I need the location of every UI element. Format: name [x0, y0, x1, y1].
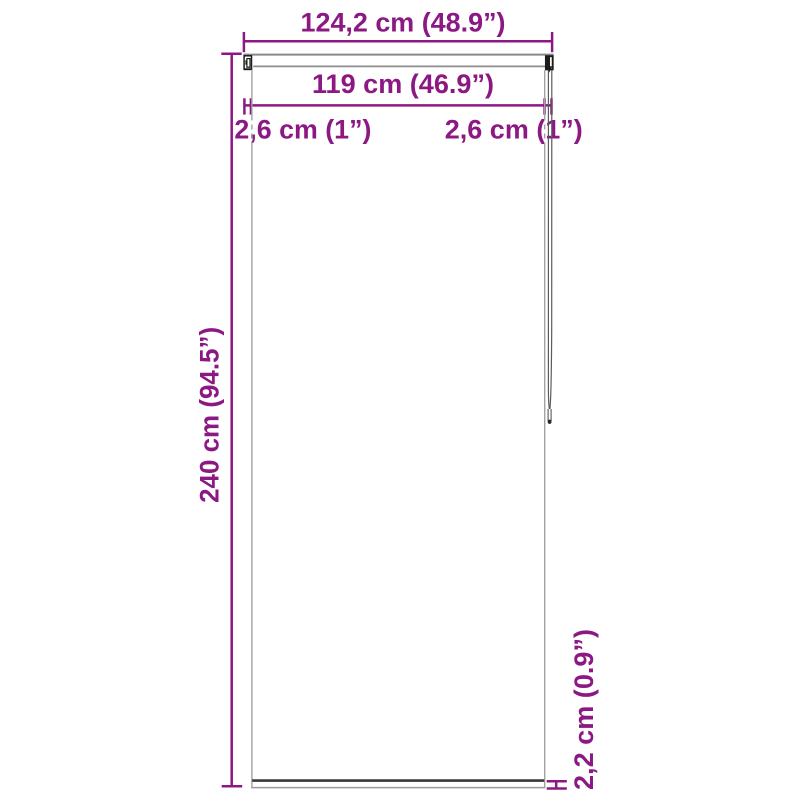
- svg-text:119 cm (46.9”): 119 cm (46.9”): [312, 69, 494, 99]
- svg-text:2,6 cm (1”): 2,6 cm (1”): [234, 115, 371, 145]
- svg-text:124,2 cm (48.9”): 124,2 cm (48.9”): [301, 8, 506, 38]
- svg-text:2,2 cm (0.9”): 2,2 cm (0.9”): [569, 629, 599, 790]
- svg-text:240 cm (94.5”): 240 cm (94.5”): [195, 327, 225, 503]
- svg-text:2,6 cm (1”): 2,6 cm (1”): [445, 115, 583, 145]
